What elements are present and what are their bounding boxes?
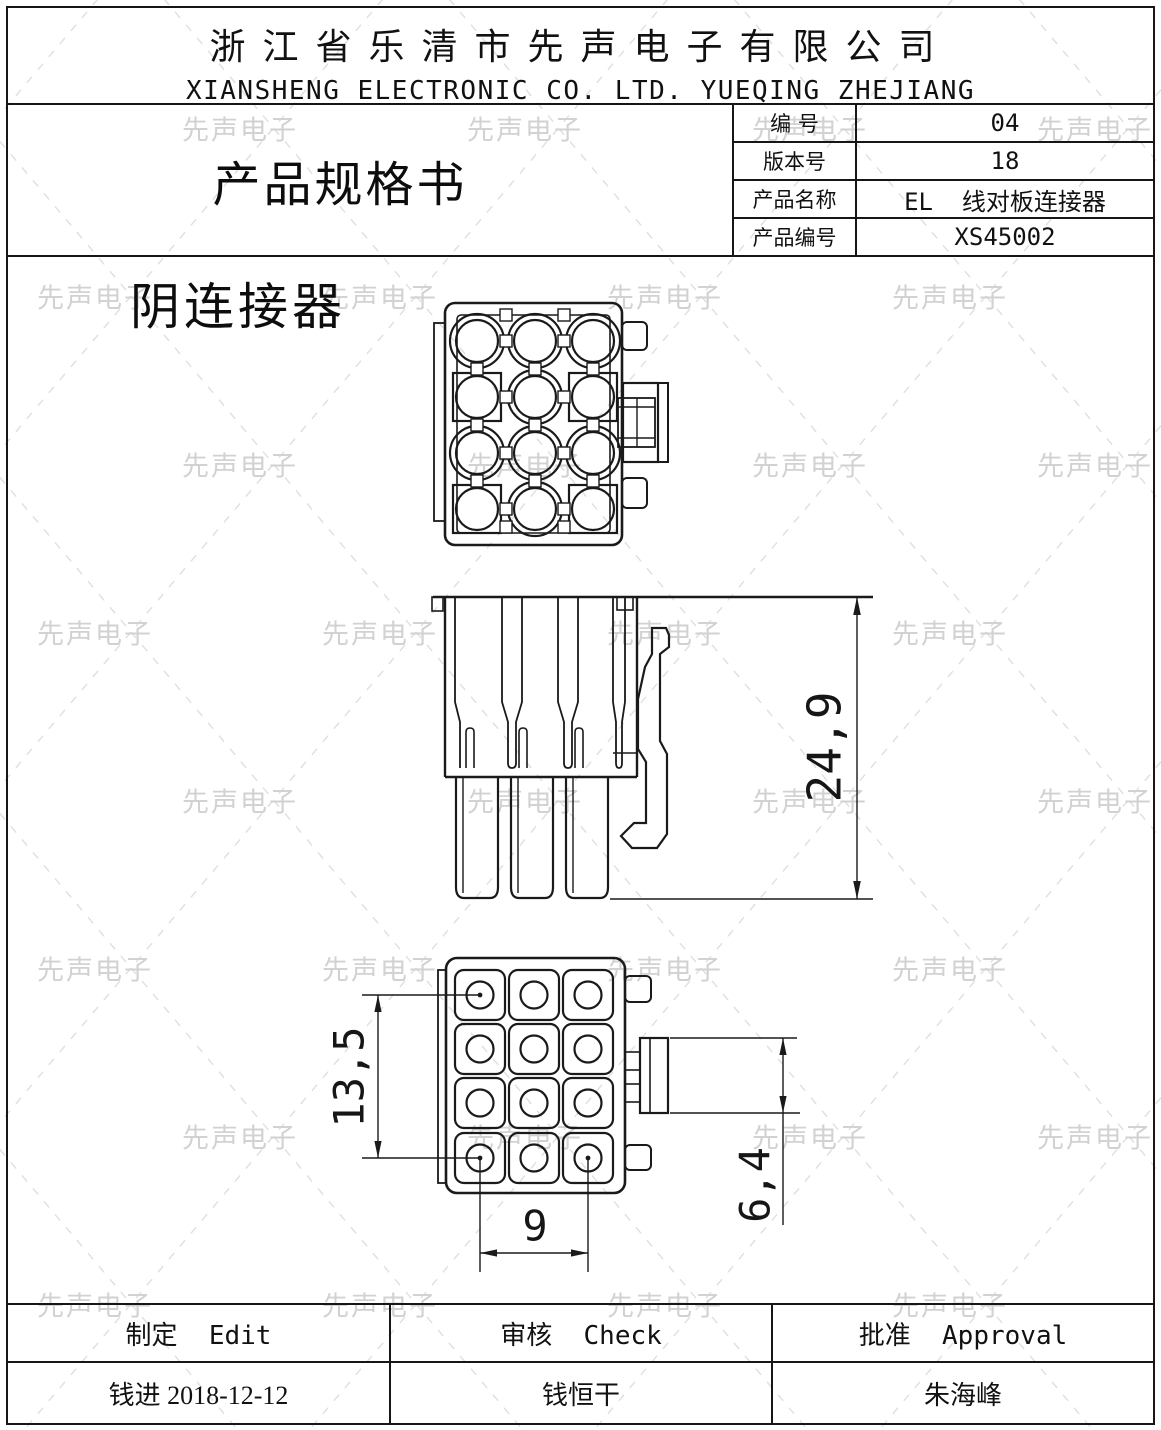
front-latch-block — [623, 383, 658, 462]
dim-grid-width: 9 — [522, 1202, 547, 1251]
contact-cavity — [509, 1133, 559, 1183]
signer-approval: 朱海峰 — [773, 1363, 1153, 1423]
field-label-version: 版本号 — [734, 143, 857, 181]
role-check: 审核 Check — [391, 1305, 773, 1363]
title-block-table: 编 号 04 版本号 18 产品名称 EL 线对板连接器 产品编号 XS4500… — [732, 105, 1153, 255]
page-border-frame: 浙江省乐清市先声电子有限公司 XIANSHENG ELECTRONIC CO. … — [6, 6, 1155, 1425]
field-value-product-code: XS45002 — [857, 219, 1153, 255]
dimension-annotations: 24,9 13,5 9 6,4 — [325, 597, 874, 1272]
web-tab — [471, 363, 483, 375]
contact-cavity — [509, 970, 559, 1020]
contact-cavity — [508, 314, 562, 368]
field-label-product-code: 产品编号 — [734, 219, 857, 255]
web-tab — [500, 335, 512, 347]
side-latch-arm — [621, 628, 669, 848]
spec-sheet-page: 先声电子先声电子先声电子先声电子先声电子先声电子先声电子先声电子先声电子先声电子… — [0, 0, 1161, 1430]
contact-cavity — [453, 485, 501, 533]
signer-edit: 钱进 2018-12-12 — [8, 1363, 391, 1423]
header: 浙江省乐清市先声电子有限公司 XIANSHENG ELECTRONIC CO. … — [8, 8, 1153, 105]
contact-cavity — [450, 314, 504, 368]
signature-table: 制定 Edit 审核 Check 批准 Approval 钱进 2018-12-… — [8, 1303, 1153, 1423]
contact-cavity — [563, 1078, 613, 1128]
web-tab — [587, 475, 599, 487]
web-tab — [500, 309, 512, 321]
web-tab — [500, 447, 512, 459]
web-tab — [587, 363, 599, 375]
web-tab — [471, 475, 483, 487]
contact-cavity — [450, 426, 504, 480]
contact-cavity — [508, 370, 562, 424]
title-row: 产品规格书 编 号 04 版本号 18 产品名称 EL 线对板连接器 产品编号 … — [8, 105, 1153, 257]
web-tab — [558, 335, 570, 347]
rear-contact-grid — [455, 970, 613, 1183]
company-name-chinese: 浙江省乐清市先声电子有限公司 — [8, 18, 1153, 70]
contact-cavity — [566, 426, 620, 480]
drawing-area: 阴连接器 — [8, 257, 1153, 1302]
contact-cavity — [509, 1078, 559, 1128]
dim-overall-height: 24,9 — [798, 692, 852, 803]
web-tab — [558, 447, 570, 459]
front-contact-grid — [450, 309, 620, 536]
field-label-number: 编 号 — [734, 105, 857, 143]
field-value-product-name: EL 线对板连接器 — [857, 181, 1153, 219]
web-tab — [471, 419, 483, 431]
document-title-cell: 产品规格书 — [8, 105, 732, 255]
contact-cavity — [453, 373, 501, 421]
web-tab — [558, 503, 570, 515]
contact-cavity — [509, 1024, 559, 1074]
web-tab — [558, 521, 570, 533]
web-tab — [529, 475, 541, 487]
web-tab — [500, 503, 512, 515]
dim-latch-height: 6,4 — [731, 1147, 780, 1223]
front-view — [434, 303, 668, 545]
signer-check: 钱恒干 — [391, 1363, 773, 1423]
contact-cavity — [455, 1078, 505, 1128]
document-title: 产品规格书 — [212, 145, 527, 215]
web-tab — [558, 309, 570, 321]
dim-grid-height: 13,5 — [325, 1026, 374, 1127]
field-value-version: 18 — [857, 143, 1153, 181]
contact-cavity — [563, 970, 613, 1020]
web-tab — [529, 419, 541, 431]
connector-technical-drawing: 24,9 13,5 9 6,4 — [8, 257, 1152, 1302]
web-tab — [500, 521, 512, 533]
rear-latch-block — [640, 1038, 668, 1113]
contact-cavity — [508, 426, 562, 480]
contact-cavity — [455, 1024, 505, 1074]
web-tab — [529, 363, 541, 375]
web-tab — [587, 419, 599, 431]
role-edit: 制定 Edit — [8, 1305, 391, 1363]
role-approval: 批准 Approval — [773, 1305, 1153, 1363]
field-label-product-name: 产品名称 — [734, 181, 857, 219]
contact-cavity — [566, 314, 620, 368]
web-tab — [500, 391, 512, 403]
company-name-english: XIANSHENG ELECTRONIC CO. LTD. YUEQING ZH… — [8, 76, 1153, 106]
contact-cavity — [563, 1024, 613, 1074]
contact-cavity — [508, 482, 562, 536]
web-tab — [558, 391, 570, 403]
field-value-number: 04 — [857, 105, 1153, 143]
